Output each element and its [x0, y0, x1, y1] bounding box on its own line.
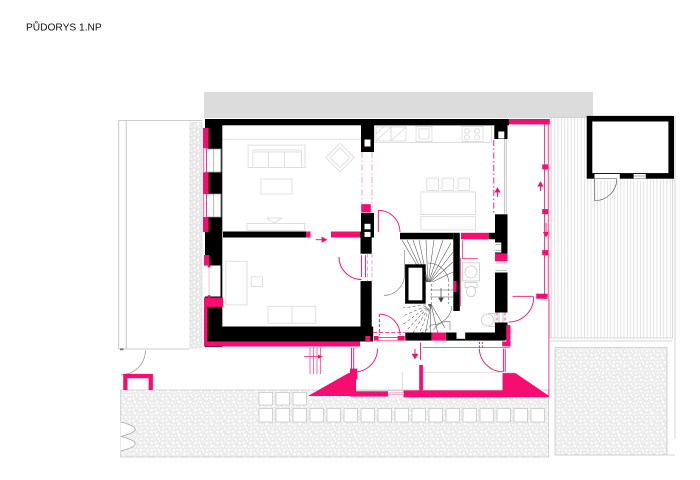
- svg-text:PŮDORYS 1.NP: PŮDORYS 1.NP: [26, 21, 102, 34]
